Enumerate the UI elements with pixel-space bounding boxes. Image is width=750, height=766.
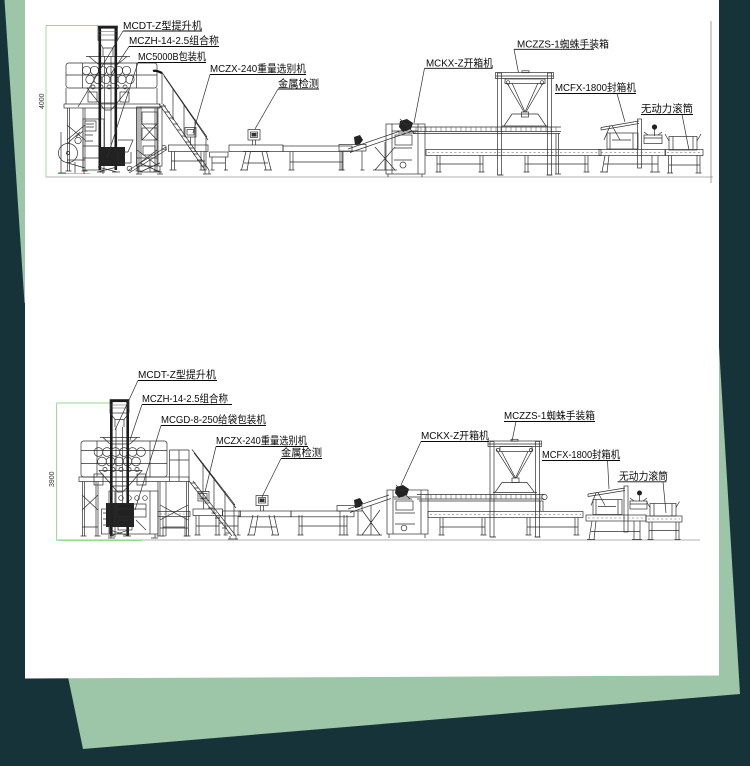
svg-text:MCFX-1800封箱机: MCFX-1800封箱机 bbox=[555, 81, 636, 94]
svg-text:MCKX-Z开箱机: MCKX-Z开箱机 bbox=[421, 429, 489, 442]
svg-text:MCGD-8-250给袋包装机: MCGD-8-250给袋包装机 bbox=[161, 413, 266, 426]
svg-text:MCKX-Z开箱机: MCKX-Z开箱机 bbox=[426, 57, 493, 70]
svg-text:4000: 4000 bbox=[39, 93, 46, 109]
svg-text:MCZX-240重量选别机: MCZX-240重量选别机 bbox=[216, 434, 307, 447]
svg-text:MCZH-14-2.5组合称: MCZH-14-2.5组合称 bbox=[142, 392, 228, 405]
svg-text:MCDT-Z型提升机: MCDT-Z型提升机 bbox=[123, 19, 202, 32]
svg-text:MC5000B包装机: MC5000B包装机 bbox=[138, 50, 206, 63]
svg-text:无动力滚筒: 无动力滚筒 bbox=[641, 102, 693, 115]
svg-text:MCDT-Z型提升机: MCDT-Z型提升机 bbox=[138, 368, 216, 381]
svg-text:MCZZS-1蜘蛛手装箱: MCZZS-1蜘蛛手装箱 bbox=[504, 409, 595, 422]
svg-text:3900: 3900 bbox=[49, 471, 56, 487]
svg-text:金属检测: 金属检测 bbox=[278, 77, 319, 90]
svg-text:MCZX-240重量选别机: MCZX-240重量选别机 bbox=[210, 62, 306, 75]
svg-text:MCFX-1800封箱机: MCFX-1800封箱机 bbox=[542, 448, 620, 461]
svg-text:MCZZS-1蜘蛛手装箱: MCZZS-1蜘蛛手装箱 bbox=[517, 38, 609, 51]
svg-text:无动力滚筒: 无动力滚筒 bbox=[619, 470, 668, 483]
svg-text:MCZH-14-2.5组合称: MCZH-14-2.5组合称 bbox=[129, 34, 219, 47]
svg-text:金属检测: 金属检测 bbox=[281, 446, 322, 459]
